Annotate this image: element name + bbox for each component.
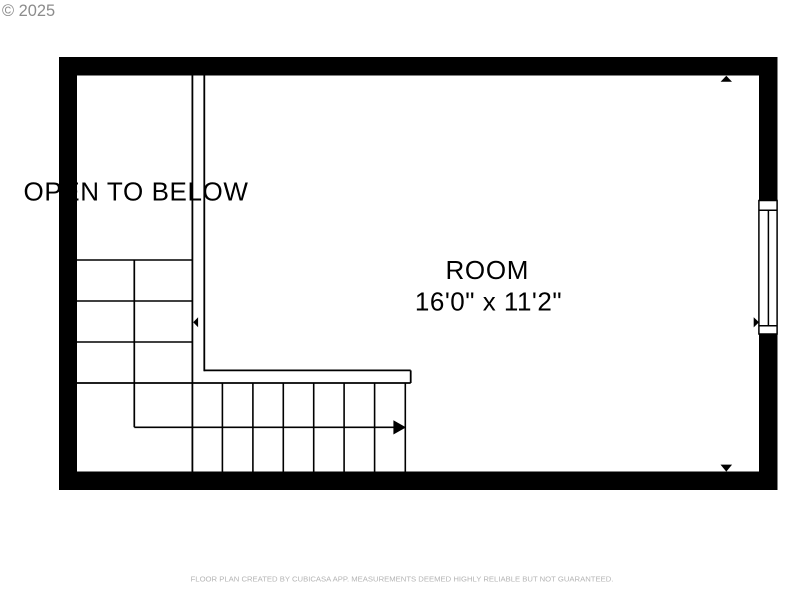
- svg-text:ROOM: ROOM: [445, 255, 529, 285]
- svg-text:OPEN TO BELOW: OPEN TO BELOW: [24, 177, 249, 207]
- svg-text:© 2025: © 2025: [2, 2, 55, 20]
- svg-text:16'0" x 11'2": 16'0" x 11'2": [415, 286, 562, 316]
- svg-text:FLOOR PLAN CREATED BY CUBICASA: FLOOR PLAN CREATED BY CUBICASA APP. MEAS…: [191, 575, 614, 584]
